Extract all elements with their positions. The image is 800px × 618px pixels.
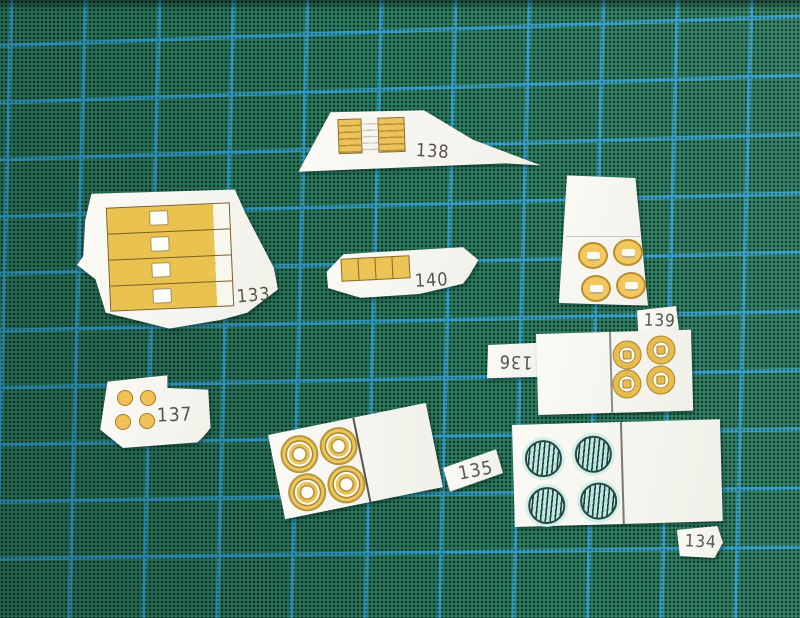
grid-line-vertical bbox=[0, 0, 14, 618]
vent-circle bbox=[574, 435, 612, 473]
window-cutout bbox=[149, 210, 169, 226]
ring-porthole bbox=[647, 336, 675, 364]
rivet-dot bbox=[139, 413, 155, 429]
grid-line-vertical bbox=[585, 0, 606, 618]
paper-piece-137: 137 bbox=[93, 372, 213, 452]
stripe-block-yellow bbox=[377, 117, 405, 153]
porthole-detail bbox=[625, 282, 638, 291]
paper-piece-133: 133 bbox=[75, 188, 280, 333]
fold-line bbox=[609, 332, 613, 413]
piece-label-139: 139 bbox=[643, 312, 675, 330]
paper-piece-140: 140 bbox=[325, 246, 480, 300]
grid-line-vertical bbox=[437, 0, 458, 618]
porthole bbox=[578, 242, 608, 269]
porthole-detail bbox=[622, 249, 635, 258]
vent-circle bbox=[524, 440, 562, 478]
piece-label-134: 134 bbox=[684, 533, 717, 552]
porthole bbox=[616, 272, 646, 299]
window-cutout bbox=[152, 288, 172, 304]
paper-shape: 137 bbox=[93, 372, 213, 452]
piece-label-136: 136 bbox=[499, 351, 533, 370]
stripe-block-yellow bbox=[337, 118, 362, 154]
fold-line bbox=[566, 236, 640, 237]
window-panel bbox=[106, 202, 234, 311]
paper-shape: 140 bbox=[325, 246, 480, 300]
piece-label-137: 137 bbox=[157, 405, 193, 425]
paper-piece-138: 138 bbox=[296, 109, 542, 173]
ring-porthole bbox=[613, 370, 641, 398]
porthole bbox=[613, 239, 643, 266]
panel-row-line bbox=[110, 280, 232, 287]
panel-row-line bbox=[108, 228, 230, 235]
piece-label-135: 135 bbox=[457, 458, 495, 483]
ring-porthole bbox=[613, 341, 641, 369]
stripe-block-white bbox=[361, 118, 378, 154]
square-row bbox=[340, 255, 410, 282]
porthole-detail bbox=[590, 285, 603, 294]
panel-row-line bbox=[109, 254, 231, 261]
paper-piece-139 bbox=[558, 174, 648, 307]
fold-line bbox=[620, 422, 624, 524]
ring-porthole-center bbox=[656, 375, 665, 384]
life-ring bbox=[285, 470, 330, 515]
paper-shape: 136 bbox=[487, 342, 541, 379]
ring-porthole-center bbox=[656, 345, 665, 354]
piece-label-140: 140 bbox=[414, 271, 449, 291]
cutting-mat-photo: 133 138 140 bbox=[0, 0, 800, 618]
window-cutout bbox=[150, 236, 170, 252]
paper-shape: 138 bbox=[296, 109, 542, 173]
piece-label-138: 138 bbox=[415, 142, 450, 162]
label-tab-136: 136 bbox=[487, 342, 541, 379]
ring-porthole-center bbox=[622, 350, 631, 359]
paper-shape: 133 bbox=[75, 188, 280, 333]
yellow-square bbox=[391, 255, 410, 279]
ring-porthole-center bbox=[622, 379, 631, 388]
vent-circle bbox=[528, 487, 566, 525]
rivet-dot bbox=[117, 390, 133, 406]
vent-circle bbox=[580, 482, 618, 520]
grid-line-horizontal bbox=[0, 73, 800, 105]
paper-piece-134 bbox=[512, 419, 723, 527]
rivet-dot bbox=[115, 414, 131, 430]
paper-shape: 134 bbox=[676, 526, 723, 558]
paper-shape bbox=[558, 174, 648, 307]
grid-line-vertical bbox=[363, 0, 384, 618]
ring-porthole bbox=[647, 366, 675, 394]
label-tab-134: 134 bbox=[676, 526, 723, 558]
life-ring bbox=[277, 432, 322, 477]
porthole-detail bbox=[587, 252, 600, 261]
grid-line-vertical bbox=[733, 0, 754, 618]
window-cutout bbox=[151, 262, 171, 278]
piece-label-133: 133 bbox=[236, 286, 271, 307]
porthole bbox=[581, 275, 611, 302]
paper-piece-136 bbox=[536, 330, 693, 415]
rivet-dot bbox=[140, 390, 156, 406]
grid-line-horizontal bbox=[0, 14, 800, 48]
striped-panel bbox=[337, 117, 405, 154]
